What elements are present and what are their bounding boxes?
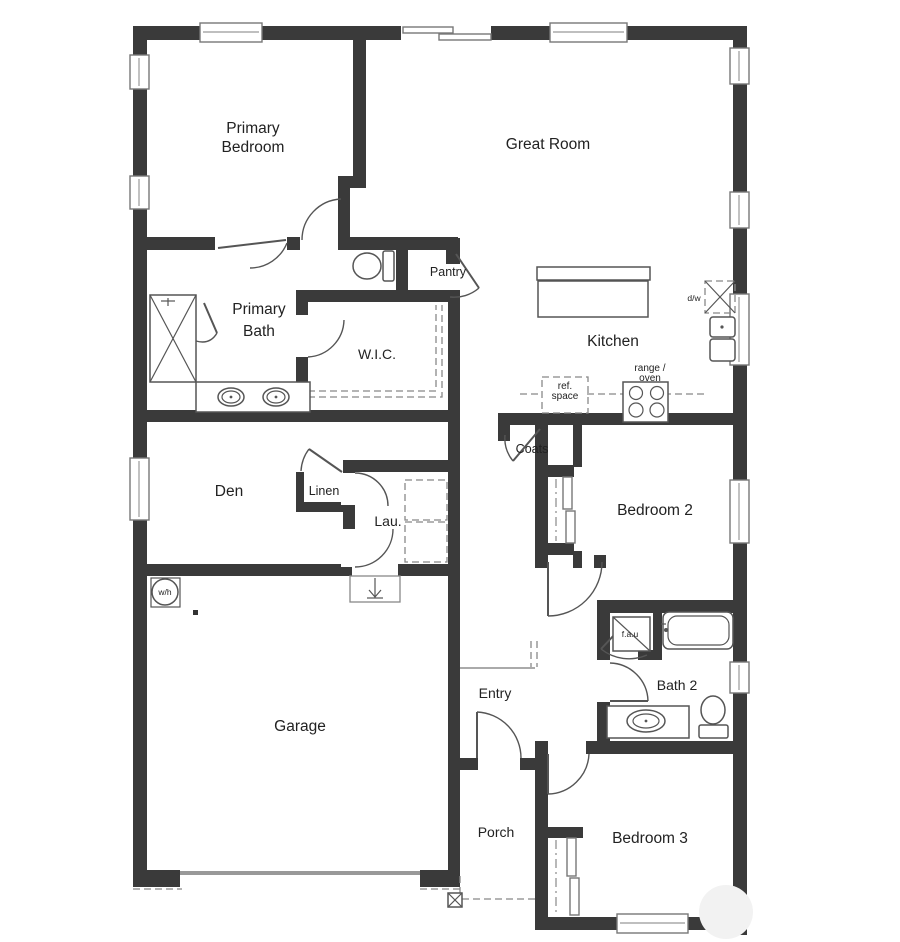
bedroom2-label: Bedroom 2	[617, 502, 693, 519]
ref-space-label2: space	[552, 391, 579, 402]
garage-landing	[350, 576, 400, 602]
closet-panels	[563, 477, 579, 915]
shower	[150, 295, 196, 382]
bath2-toilet	[699, 696, 728, 738]
dishwasher-label: d/w	[687, 293, 701, 303]
primary-bedroom-label: Primary	[226, 120, 280, 137]
primary-bath-label2: Bath	[243, 323, 275, 340]
porch-label: Porch	[478, 824, 515, 840]
washer-outline	[405, 480, 447, 520]
laundry-door-arc	[355, 473, 388, 506]
primary-bedroom-door-arc	[302, 199, 341, 240]
garage-label: Garage	[274, 718, 326, 735]
linen-door-leaf	[309, 449, 342, 472]
floor-plan-drawing: Primary Bedroom Great Room Pantry Primar…	[0, 0, 900, 942]
bath2-sink	[607, 706, 689, 738]
floor-plan: Primary Bedroom Great Room Pantry Primar…	[0, 0, 900, 942]
primary-bath-label: Primary	[232, 301, 286, 318]
kitchen-label: Kitchen	[587, 333, 639, 350]
garage-post-dot	[193, 610, 198, 615]
primary-bedroom-label2: Bedroom	[222, 139, 285, 156]
linen-label: Linen	[309, 484, 340, 498]
water-heater-label: w/h	[157, 587, 172, 597]
kitchen-sink	[710, 317, 735, 361]
bedroom3-label: Bedroom 3	[612, 830, 688, 847]
kitchen-island	[537, 267, 650, 317]
dryer-outline	[405, 522, 447, 562]
range-oven-label2: oven	[639, 373, 661, 384]
pantry-label: Pantry	[430, 265, 467, 279]
shower-door-leaf	[204, 303, 217, 333]
laundry-garage-door-arc	[355, 529, 393, 567]
bath2-label: Bath 2	[657, 677, 698, 693]
great-room-label: Great Room	[506, 136, 590, 153]
laundry-label: Lau.	[374, 513, 401, 529]
toilet	[353, 251, 394, 281]
vanity	[196, 382, 310, 412]
den-label: Den	[215, 483, 243, 500]
wic-door-arc	[308, 320, 344, 357]
entry-label: Entry	[479, 685, 512, 701]
watermark-circle	[699, 885, 753, 939]
bathtub	[661, 612, 733, 649]
fau-label: f.a.u	[622, 629, 639, 639]
wic-label: W.I.C.	[358, 346, 396, 362]
coats-label: Coats	[516, 442, 549, 456]
porch-post	[448, 893, 462, 907]
range-oven	[623, 382, 668, 422]
windows	[130, 23, 749, 933]
